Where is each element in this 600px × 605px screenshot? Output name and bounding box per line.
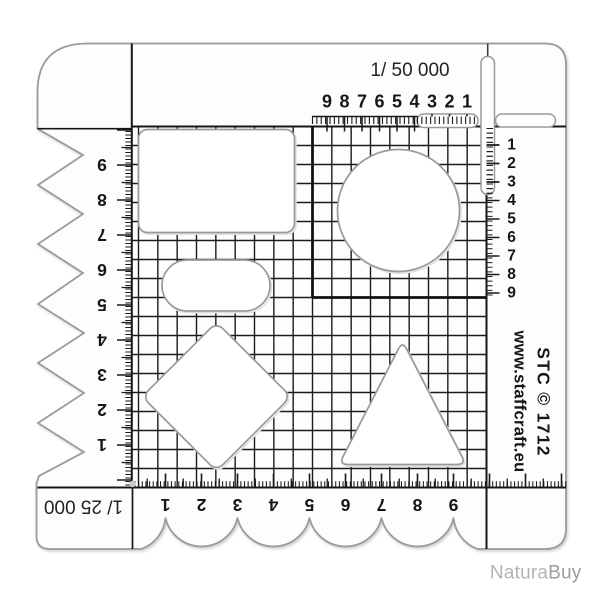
- svg-text:6: 6: [340, 495, 350, 515]
- svg-text:4: 4: [507, 192, 516, 209]
- svg-text:1: 1: [160, 495, 170, 515]
- svg-text:9: 9: [507, 285, 516, 302]
- svg-text:9: 9: [97, 155, 107, 175]
- svg-text:9: 9: [322, 92, 332, 112]
- svg-text:7: 7: [97, 225, 107, 245]
- svg-text:7: 7: [357, 92, 367, 112]
- svg-text:2: 2: [507, 155, 516, 172]
- svg-text:8: 8: [97, 190, 107, 210]
- svg-text:3: 3: [97, 365, 107, 385]
- svg-text:6: 6: [97, 260, 107, 280]
- svg-text:2: 2: [444, 92, 454, 112]
- svg-text:STC © 1712: STC © 1712: [534, 347, 554, 457]
- svg-text:8: 8: [339, 92, 349, 112]
- svg-text:8: 8: [412, 495, 422, 515]
- svg-text:www.staffcraft.eu: www.staffcraft.eu: [511, 329, 529, 472]
- svg-text:6: 6: [507, 229, 516, 246]
- svg-text:1/ 25 000: 1/ 25 000: [44, 496, 123, 517]
- svg-text:5: 5: [392, 92, 402, 112]
- svg-text:4: 4: [268, 495, 278, 515]
- svg-text:NaturaBuy: NaturaBuy: [490, 563, 582, 584]
- svg-text:3: 3: [507, 174, 516, 191]
- svg-text:3: 3: [427, 92, 437, 112]
- svg-text:2: 2: [196, 495, 206, 515]
- svg-text:1: 1: [507, 137, 516, 154]
- svg-text:3: 3: [232, 495, 242, 515]
- svg-text:1: 1: [97, 435, 107, 455]
- svg-text:4: 4: [97, 330, 107, 350]
- svg-text:4: 4: [409, 92, 419, 112]
- svg-text:7: 7: [377, 495, 387, 515]
- svg-text:5: 5: [304, 495, 314, 515]
- svg-text:6: 6: [374, 92, 384, 112]
- svg-text:5: 5: [97, 295, 107, 315]
- svg-text:1/ 50 000: 1/ 50 000: [370, 60, 449, 81]
- svg-text:2: 2: [97, 400, 107, 420]
- svg-text:1: 1: [462, 92, 472, 112]
- svg-text:5: 5: [507, 211, 516, 228]
- svg-text:7: 7: [507, 248, 516, 265]
- svg-text:9: 9: [448, 495, 458, 515]
- svg-text:8: 8: [507, 266, 516, 283]
